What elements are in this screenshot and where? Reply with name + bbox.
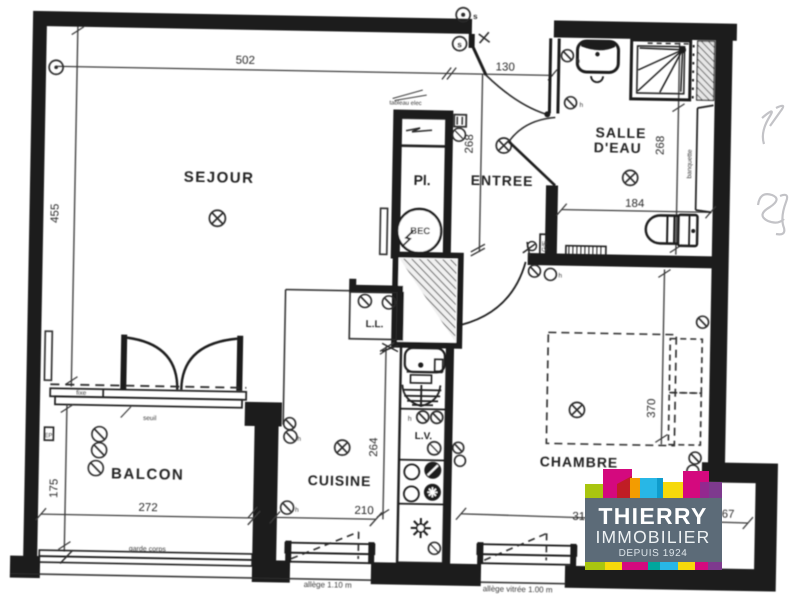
svg-text:268: 268 (464, 134, 476, 153)
svg-text:67: 67 (722, 509, 735, 521)
svg-text:SEJOUR: SEJOUR (184, 169, 255, 187)
svg-text:seuil: seuil (143, 415, 157, 422)
svg-text:184: 184 (625, 198, 645, 210)
svg-text:garde corps: garde corps (129, 545, 167, 554)
svg-text:455: 455 (49, 204, 61, 223)
svg-text:264: 264 (368, 437, 380, 457)
svg-text:D'EAU: D'EAU (594, 139, 642, 156)
svg-text:THIERRY: THIERRY (598, 503, 707, 529)
svg-text:G/E: G/E (541, 240, 548, 252)
svg-text:h: h (408, 415, 412, 423)
svg-text:s: s (473, 12, 478, 21)
svg-text:tableau elec: tableau elec (389, 99, 421, 107)
svg-text:L.L.: L.L. (365, 319, 383, 330)
svg-text:CHAMBRE: CHAMBRE (540, 453, 619, 470)
svg-text:BALCON: BALCON (111, 465, 184, 483)
svg-text:L.V.: L.V. (415, 431, 433, 442)
svg-text:s: s (457, 40, 462, 49)
svg-text:h: h (579, 102, 583, 109)
svg-text:h: h (295, 507, 299, 514)
svg-text:banquette: banquette (686, 149, 694, 178)
svg-text:272: 272 (138, 502, 157, 514)
svg-text:370: 370 (646, 399, 658, 418)
svg-text:h: h (297, 436, 301, 443)
svg-text:268: 268 (655, 136, 667, 155)
svg-text:allège 1.10 m: allège 1.10 m (304, 580, 353, 590)
svg-text:502: 502 (236, 55, 255, 67)
svg-text:175: 175 (48, 479, 60, 498)
svg-text:DEPUIS 1924: DEPUIS 1924 (619, 548, 688, 559)
svg-text:130: 130 (496, 61, 515, 73)
svg-text:h: h (576, 58, 580, 65)
svg-text:allège vitrée 1.00 m: allège vitrée 1.00 m (483, 584, 553, 594)
svg-text:CUISINE: CUISINE (308, 472, 372, 489)
svg-text:IMMOBILIER: IMMOBILIER (595, 527, 710, 547)
svg-text:EP: EP (44, 432, 52, 439)
svg-text:fixe: fixe (76, 390, 87, 397)
svg-text:Pl.: Pl. (413, 172, 430, 188)
svg-text:210: 210 (354, 505, 373, 517)
svg-text:h: h (558, 273, 562, 280)
